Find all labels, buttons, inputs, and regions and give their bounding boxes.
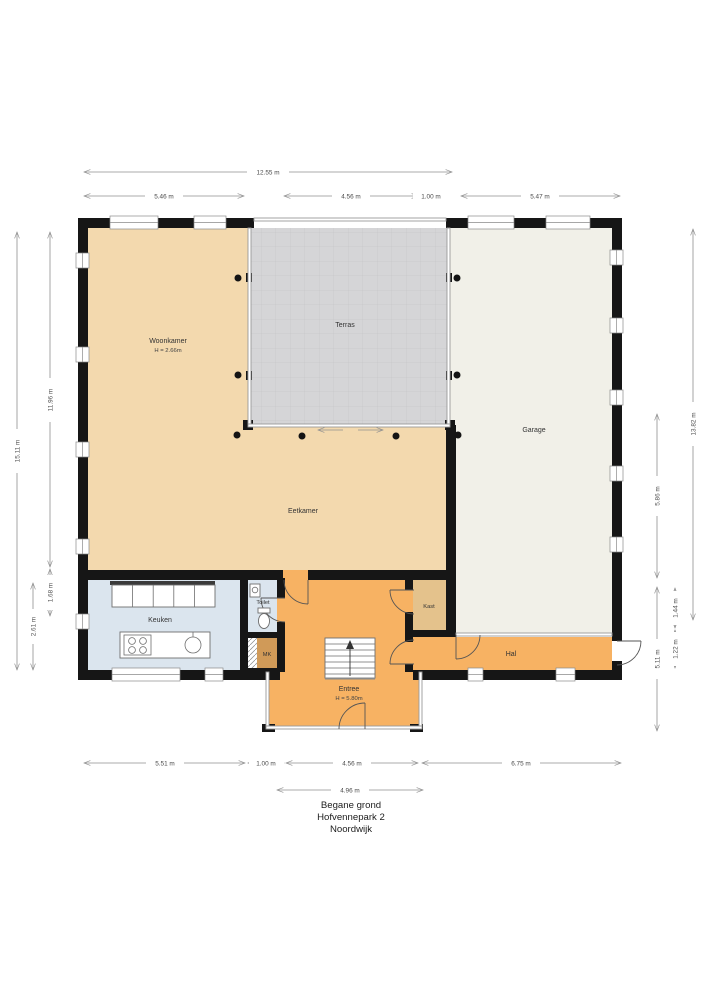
window [76, 442, 89, 457]
window [610, 250, 623, 265]
dimension-label: 5.51 m [155, 761, 175, 768]
door-gap-fill [405, 642, 413, 664]
wall-bottom-right [413, 670, 622, 680]
dimensions-right: 13.82 m 5.86 m 5.11 m 1.44 m 1.22 m [652, 229, 699, 731]
window [610, 537, 623, 552]
toilet-tank [258, 608, 270, 613]
wall-entree-right-b [405, 612, 413, 642]
window [556, 668, 575, 681]
terras-glass-bottom [248, 424, 450, 427]
terras-glass-left [248, 228, 251, 424]
dimensions-bottom: 5.51 m 1.00 m 4.56 m 6.75 m 4.96 m [84, 758, 621, 795]
column-dot [455, 432, 462, 439]
dimension-label: 6.75 m [511, 761, 531, 768]
dimensions-top: 12.55 m 5.46 m 4.56 m 1.00 m 5.47 m [84, 167, 620, 201]
window [610, 390, 623, 405]
wall-toilet-entree-lower [277, 622, 285, 670]
dimension-label: 5.86 m [655, 486, 662, 506]
window [110, 216, 158, 229]
room-label-terras: Terras [335, 322, 355, 329]
window [76, 253, 89, 268]
kitchen-counter-backsplash [110, 581, 215, 585]
porch-glass-right [419, 672, 422, 726]
dimension-label: 5.47 m [530, 194, 550, 201]
door-gap-fill [283, 570, 308, 580]
floorplan-page: Woonkamer H = 2.66m Terras Garage Eetkam… [0, 0, 707, 1000]
terras-glass-right [447, 228, 450, 424]
window [76, 539, 89, 554]
dimension-label: 4.56 m [341, 194, 361, 201]
wall-eetkamer-keuken [86, 570, 283, 580]
porch-glass-front [266, 726, 422, 729]
room-height-woonkamer: H = 2.66m [154, 348, 181, 354]
window [546, 216, 590, 229]
plan-title-address: Hofvennepark 2 [317, 812, 385, 823]
column-dot [235, 275, 242, 282]
door-gap-fill [405, 590, 413, 612]
column-dot [234, 432, 241, 439]
dimension-label: 4.56 m [342, 761, 362, 768]
room-label-entree: Entree [339, 686, 360, 693]
room-label-woonkamer: Woonkamer [149, 338, 187, 345]
dimension-label: 11.96 m [48, 389, 55, 412]
wall-keuken-toilet [240, 578, 248, 670]
dimension-label: 1.00 m [421, 194, 441, 201]
dimension-label: 1.68 m [48, 583, 55, 603]
column-dot [235, 372, 242, 379]
floorplan-drawing: Woonkamer H = 2.66m Terras Garage Eetkam… [0, 0, 707, 1000]
hal-glass-partition [456, 633, 612, 636]
dimension-label: 1.00 m [256, 761, 276, 768]
title-block: Begane grond Hofvennepark 2 Noordwijk [317, 800, 385, 835]
room-label-kast: Kast [423, 604, 435, 610]
dimension-label: 1.44 m [673, 598, 680, 618]
dimension-label: 13.82 m [691, 412, 698, 435]
room-height-entree: H = 5.80m [335, 696, 362, 702]
wall-mk-bottom [248, 668, 285, 672]
window [76, 614, 89, 629]
room-label-hal: Hal [506, 651, 517, 658]
column-dot [454, 275, 461, 282]
dimension-label: 4.96 m [340, 788, 360, 795]
dimension-label: 5.11 m [655, 649, 662, 668]
window [76, 347, 89, 362]
window [610, 466, 623, 481]
wall-right [612, 218, 622, 641]
window [112, 668, 180, 681]
room-label-mk: MK [263, 652, 272, 658]
window [610, 318, 623, 333]
room-label-garage: Garage [522, 427, 545, 434]
column-dot [454, 372, 461, 379]
terras-top-edge [254, 218, 446, 221]
window [468, 668, 483, 681]
dimension-label: 5.46 m [154, 194, 174, 201]
wall-kast-bottom [405, 630, 456, 637]
dimension-label: 12.55 m [256, 170, 279, 177]
dimensions-left: 15.11 m 11.96 m 1.68 m 2.61 m [12, 232, 56, 670]
room-label-toilet: Toilet [256, 600, 270, 606]
porch-glass-left [266, 672, 269, 726]
wall-entree-right-a [405, 580, 413, 590]
plan-title-floor: Begane grond [321, 800, 381, 811]
dimension-label: 15.11 m [15, 440, 22, 463]
staircase [325, 638, 375, 679]
wall-garage-divider [446, 425, 456, 637]
mk-shaft-hatch [248, 638, 257, 668]
column-dot [393, 433, 400, 440]
door-gap-fill [277, 598, 285, 622]
plan-title-city: Noordwijk [330, 824, 372, 835]
wall-entree-right-c [405, 664, 413, 672]
toilet-bowl [259, 614, 270, 629]
wall-toilet-bottom [248, 632, 285, 638]
room-label-keuken: Keuken [148, 617, 172, 624]
window [468, 216, 514, 229]
kitchen-counter [112, 585, 215, 607]
window [194, 216, 226, 229]
window [205, 668, 223, 681]
wall-eetkamer-entree [308, 570, 446, 580]
column-dot [299, 433, 306, 440]
dimension-label: 1.22 m [673, 639, 680, 659]
dimension-label: 2.61 m [31, 617, 38, 637]
room-label-eetkamer: Eetkamer [288, 508, 319, 515]
toilet-sink [250, 584, 260, 597]
kitchen-island [120, 632, 210, 658]
wall-top-left [78, 218, 254, 228]
